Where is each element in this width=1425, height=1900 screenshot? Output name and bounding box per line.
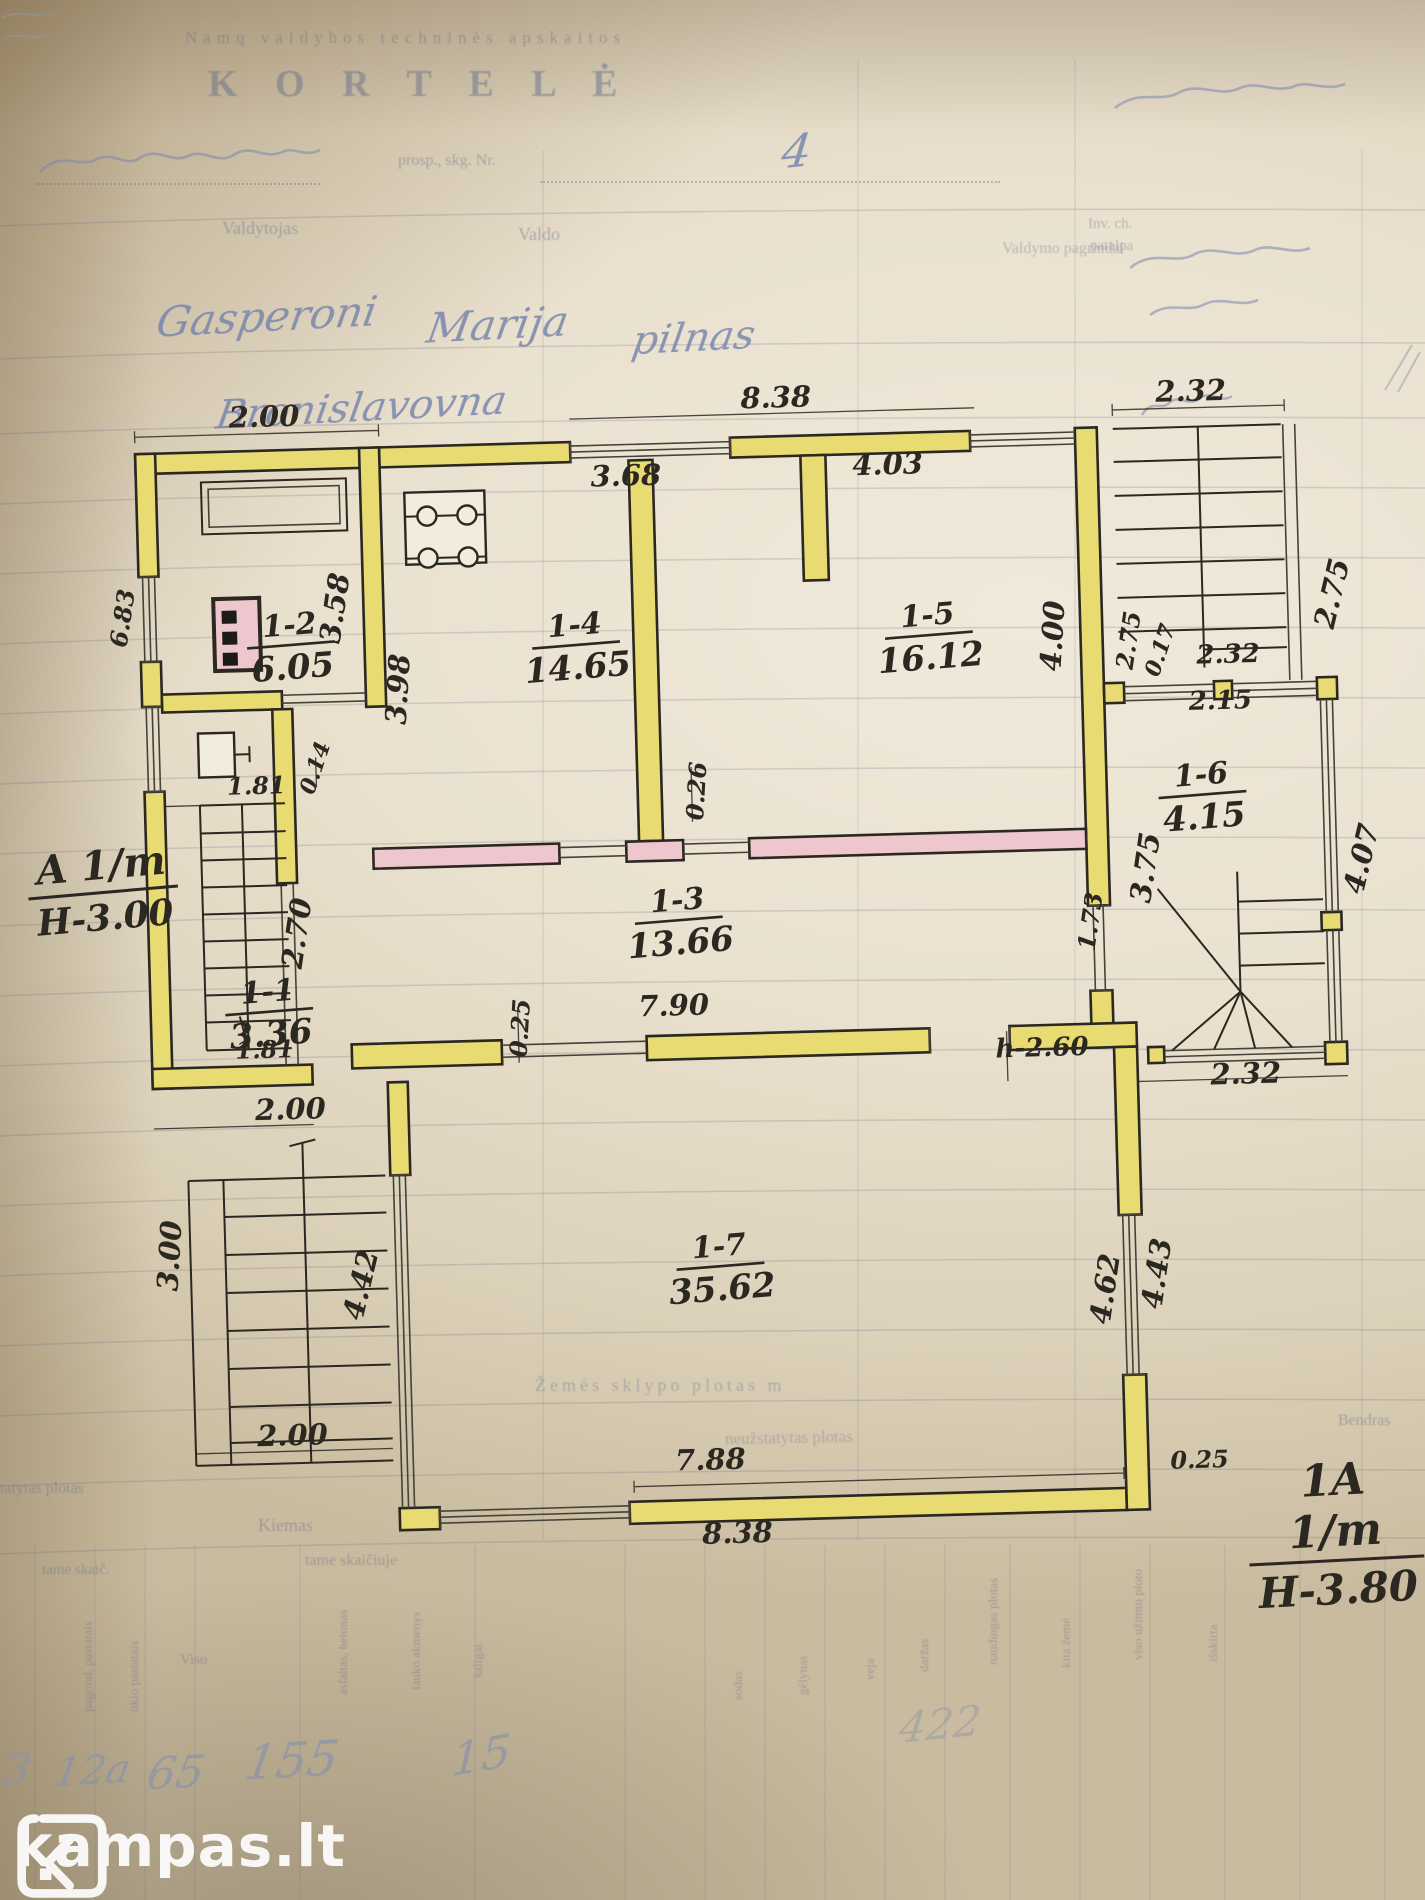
svg-text:6.05: 6.05: [250, 645, 336, 692]
dimension-label: 4.43: [1135, 1236, 1179, 1311]
dimension-label: 0.17: [1140, 620, 1182, 680]
dimension-label: 4.03: [852, 446, 924, 482]
dimension-label: 3.68: [590, 458, 662, 494]
section-note-right: 1A 1/m H-3.80: [1244, 1451, 1425, 1619]
svg-text:4.15: 4.15: [1161, 794, 1247, 841]
dimension-label: 2.00: [227, 399, 300, 435]
dimension-label: 7.90: [638, 987, 710, 1023]
dimension-label: 3.58: [313, 571, 357, 646]
dimension-label: 2.00: [256, 1417, 329, 1453]
dimension-label: 4.00: [1033, 600, 1071, 673]
svg-text:13.66: 13.66: [626, 919, 735, 967]
svg-text:35.62: 35.62: [668, 1265, 777, 1313]
dimension-label: 4.42: [336, 1246, 385, 1323]
svg-text:1-1: 1-1: [239, 973, 296, 1012]
svg-text:3.36: 3.36: [228, 1011, 314, 1058]
dimension-label: 4.62: [1083, 1251, 1127, 1326]
svg-text:1-4: 1-4: [546, 606, 603, 645]
section-right-line1: 1A 1/m: [1244, 1451, 1424, 1567]
dimension-label: 0.25: [504, 998, 536, 1058]
dimension-label: 6.83: [104, 587, 141, 649]
room-label: 1-516.12: [873, 594, 986, 682]
room-label: 1-735.62: [664, 1225, 777, 1313]
dimension-label: 4.07: [1336, 820, 1385, 897]
dimension-label: 0.14: [295, 738, 337, 797]
dimension-lines: [134, 398, 1359, 1506]
section-right-line2: H-3.80: [1250, 1557, 1425, 1618]
dimension-label: 2.75: [1307, 555, 1357, 633]
svg-text:1-7: 1-7: [691, 1227, 748, 1266]
svg-text:1-3: 1-3: [649, 881, 706, 920]
dimension-label: 8.38: [739, 379, 812, 415]
stove-icon: [404, 491, 486, 569]
room-label: 1-13.36: [222, 971, 316, 1058]
dimension-label: 2.15: [1187, 685, 1252, 717]
partition-walls: [373, 829, 1086, 869]
svg-text:1-6: 1-6: [1173, 755, 1230, 794]
scanned-floorplan-card-photo: Namų valdybos techninės apskaitos K O R …: [0, 0, 1425, 1900]
dimension-label: 2.75: [1110, 609, 1147, 672]
builtin-closet-icon: [201, 478, 347, 534]
dimension-label: 8.38: [701, 1515, 774, 1551]
dimension-label: 0.25: [1170, 1444, 1229, 1475]
dimension-label: 2.32: [1195, 639, 1260, 671]
dimension-label: 2.00: [254, 1091, 327, 1127]
section-note-left: A 1/m H-3.00: [24, 836, 182, 946]
dimension-label: 0.26: [680, 761, 712, 821]
svg-text:14.65: 14.65: [523, 644, 632, 692]
winder-staircase-veranda: [1157, 869, 1327, 1051]
dimension-label: 3.98: [379, 653, 417, 726]
svg-text:16.12: 16.12: [876, 634, 985, 682]
dimension-label: 7.88: [675, 1442, 747, 1478]
room-label: 1-64.15: [1156, 754, 1250, 841]
floor-plan-drawing: 2.008.382.323.684.032.753.583.984.002.75…: [0, 0, 1425, 1900]
dimension-label: 1.73: [1072, 890, 1109, 952]
dimension-label: h-2.60: [995, 1032, 1089, 1065]
dimension-label: 2.32: [1154, 373, 1227, 409]
exterior-walls: [135, 421, 1360, 1537]
kampas-logo-icon: [14, 1812, 110, 1900]
room-label: 1-414.65: [520, 604, 633, 692]
dimension-label: 2.32: [1209, 1055, 1282, 1091]
room-label: 1-313.66: [623, 879, 736, 967]
dimension-label: 3.00: [150, 1219, 188, 1292]
kampas-watermark: kampas.lt: [14, 1812, 346, 1880]
dimension-label: 1.81: [227, 770, 286, 801]
svg-text:1-2: 1-2: [261, 606, 318, 645]
svg-text:1-5: 1-5: [899, 596, 956, 635]
